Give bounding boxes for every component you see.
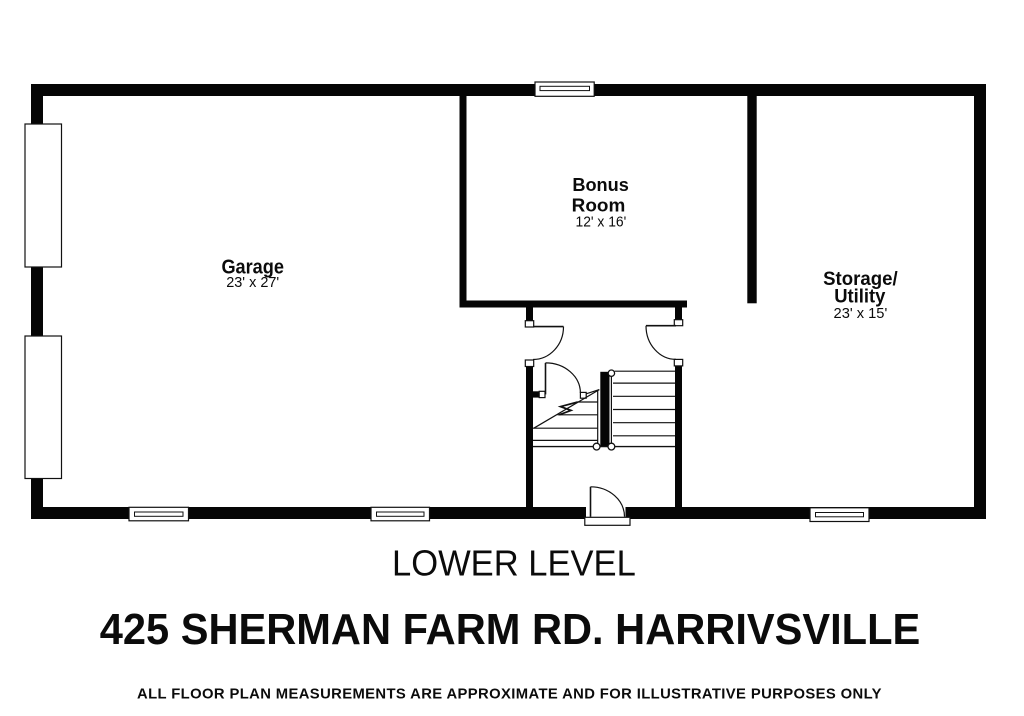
svg-text:12' x 16': 12' x 16' — [576, 215, 627, 231]
svg-text:ALL FLOOR PLAN MEASUREMENTS AR: ALL FLOOR PLAN MEASUREMENTS ARE APPROXIM… — [137, 686, 882, 702]
svg-text:Room: Room — [572, 194, 626, 215]
svg-text:Utility: Utility — [834, 287, 886, 308]
svg-text:LOWER LEVEL: LOWER LEVEL — [392, 544, 636, 584]
svg-text:23' x 27': 23' x 27' — [226, 275, 279, 291]
svg-text:Bonus: Bonus — [572, 174, 629, 195]
svg-text:425 SHERMAN FARM RD. HARRIVSVI: 425 SHERMAN FARM RD. HARRIVSVILLE — [100, 606, 921, 654]
svg-text:23' x 15': 23' x 15' — [834, 306, 888, 322]
